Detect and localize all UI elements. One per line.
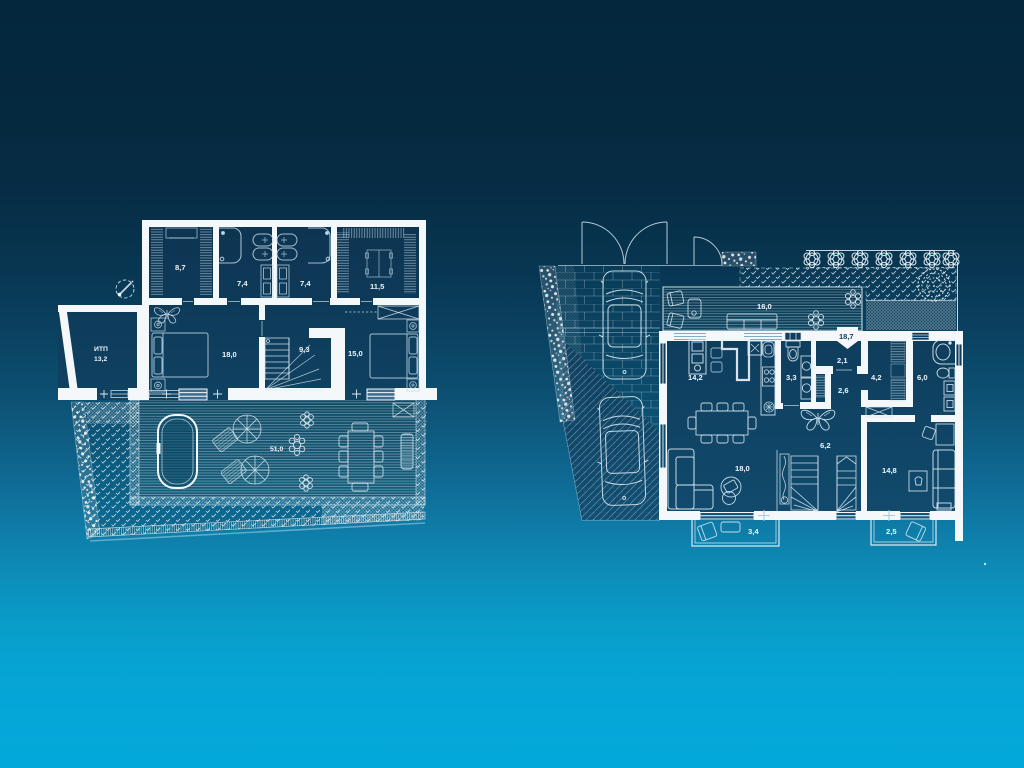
svg-text:6,2: 6,2	[820, 441, 831, 450]
svg-text:15,0: 15,0	[348, 349, 363, 358]
svg-text:8,7: 8,7	[175, 263, 186, 272]
svg-text:16,0: 16,0	[757, 302, 772, 311]
svg-text:9,3: 9,3	[299, 345, 310, 354]
svg-text:14,2: 14,2	[688, 373, 703, 382]
svg-text:2,6: 2,6	[838, 386, 849, 395]
svg-text:3,3: 3,3	[786, 373, 797, 382]
svg-text:4,2: 4,2	[871, 373, 882, 382]
svg-text:7,4: 7,4	[237, 279, 248, 288]
svg-text:51,0: 51,0	[270, 446, 283, 453]
svg-text:2,5: 2,5	[886, 527, 897, 536]
svg-text:6,0: 6,0	[917, 373, 928, 382]
svg-text:18,0: 18,0	[735, 464, 750, 473]
svg-text:11,5: 11,5	[370, 282, 385, 291]
svg-text:13,2: 13,2	[94, 356, 107, 363]
svg-text:2,1: 2,1	[837, 356, 848, 365]
svg-text:14,8: 14,8	[882, 466, 897, 475]
svg-text:7,4: 7,4	[300, 279, 311, 288]
svg-text:18,0: 18,0	[222, 350, 237, 359]
svg-text:18,7: 18,7	[839, 332, 854, 341]
svg-text:3,4: 3,4	[748, 527, 759, 536]
svg-text:ИТП: ИТП	[94, 346, 108, 353]
